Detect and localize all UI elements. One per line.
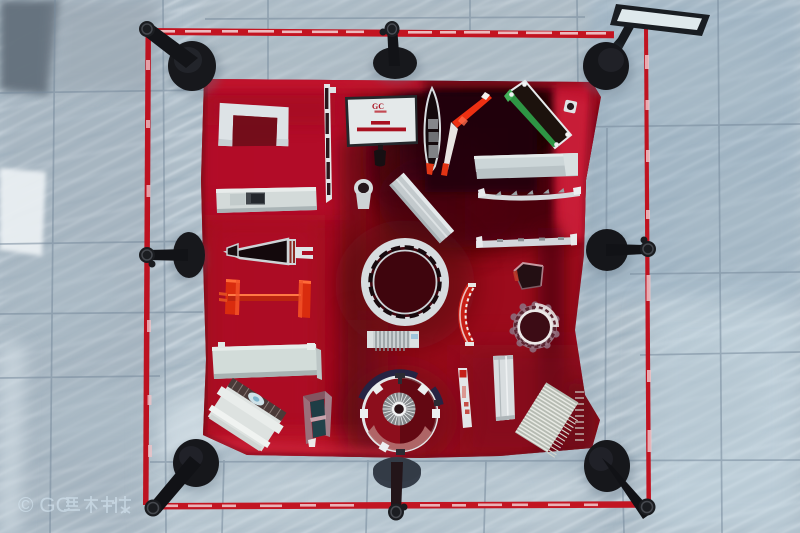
svg-text:© GC: © GC xyxy=(18,494,71,517)
svg-text:GC: GC xyxy=(372,102,384,111)
